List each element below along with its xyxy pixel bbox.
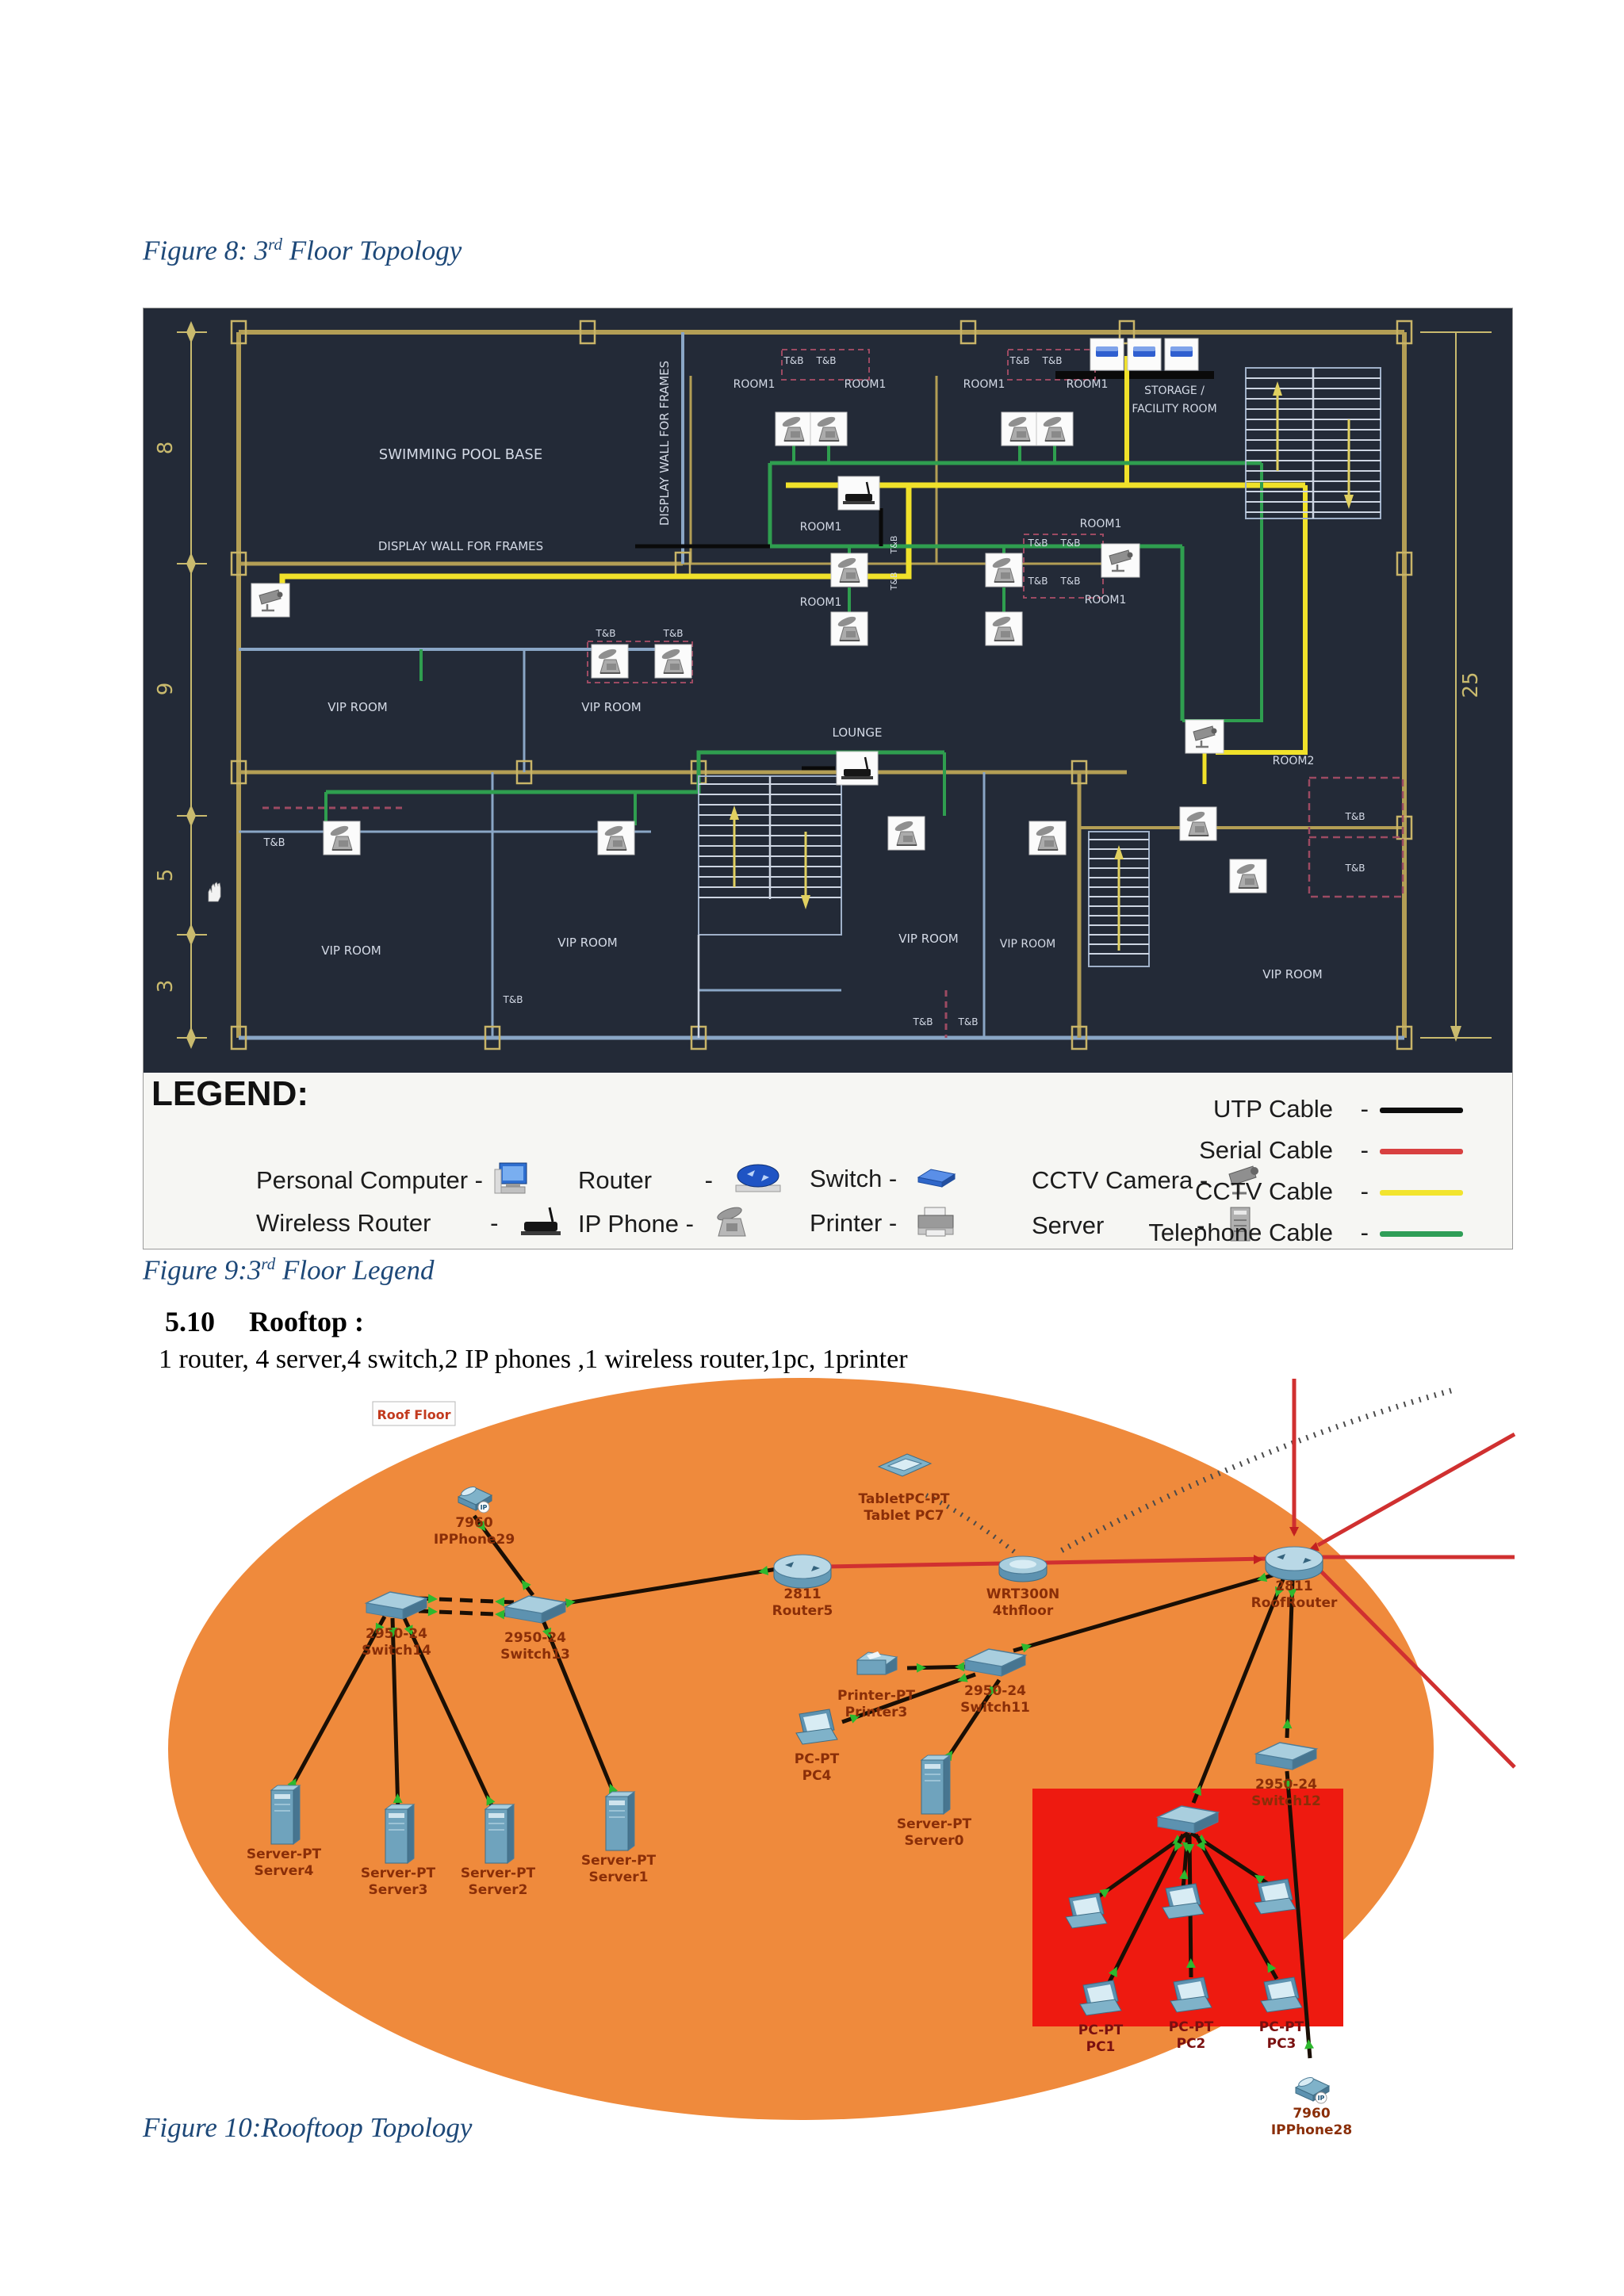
floorplan-label: 5: [154, 869, 178, 882]
ip-phone-plan-icon: [592, 645, 628, 678]
serial-cable-swatch: [1380, 1149, 1463, 1154]
floorplan-label: ROOM1: [1080, 518, 1122, 530]
figure10-caption-text: Figure 10:Rooftoop Topology: [143, 2112, 472, 2143]
floorplan-label: VIP ROOM: [898, 932, 958, 946]
node-label-line2: Server3: [369, 1882, 428, 1898]
svg-text:IP: IP: [1318, 2095, 1325, 2102]
floorplan-canvas: SWIMMING POOL BASEDISPLAY WALL FOR FRAME…: [144, 308, 1512, 1073]
node-label-line2: Printer3: [845, 1705, 908, 1720]
node-label-line2: Server4: [255, 1863, 314, 1879]
floorplan-label: T&B: [1345, 863, 1365, 874]
node-label-line1: Server-PT: [897, 1816, 972, 1832]
node-label-line2: Tablet PC7: [864, 1508, 944, 1524]
floorplan-label: T&B: [663, 628, 684, 639]
rooftop-topology-canvas: Roof Floor IP7960IPPhone29 2950-24Switch…: [103, 1375, 1522, 2177]
floorplan-label: ROOM2: [1273, 755, 1315, 767]
floorplan-label: ROOM1: [963, 378, 1005, 391]
ip-phone-plan-icon: [1180, 807, 1216, 840]
floorplan-label: ROOM1: [845, 378, 887, 391]
node-label-line1: 2950-24: [504, 1630, 566, 1646]
legend-item-switch: Switch -: [810, 1161, 959, 1200]
floorplan-label: STORAGE /: [1144, 385, 1205, 397]
floorplan-label: 25: [1459, 672, 1483, 698]
section-number: 5.10: [165, 1306, 215, 1337]
node-label-line2: PC4: [802, 1768, 832, 1784]
legend-cable-cctv: CCTV Cable -: [1127, 1177, 1463, 1206]
legend-cable-serial: Serial Cable -: [1127, 1136, 1463, 1165]
legend-item-ip-phone: IP Phone -: [578, 1204, 753, 1247]
floorplan-label: T&B: [889, 572, 899, 591]
legend-cable-utp: UTP Cable -: [1127, 1095, 1463, 1123]
server-node-icon: [921, 1755, 950, 1814]
figure9-caption-sup: rd: [261, 1254, 275, 1273]
legend-label-ip-phone: IP Phone -: [578, 1210, 694, 1238]
ip-phone-plan-icon: [986, 553, 1022, 587]
cctv-plan-icon: [251, 584, 289, 617]
ip-phone-plan-icon: [888, 817, 925, 850]
floorplan-label: T&B: [1345, 811, 1365, 822]
node-label-line2: Server0: [905, 1833, 964, 1849]
floorplan-label: VIP ROOM: [557, 936, 617, 950]
node-label-line2: PC2: [1177, 2036, 1206, 2052]
floorplan-label: ROOM1: [800, 521, 842, 534]
floorplan-label: T&B: [1042, 355, 1063, 366]
ip-phone-node-icon: IP: [1296, 2076, 1329, 2103]
server-node-icon: [271, 1785, 300, 1844]
cctv-cable-swatch: [1380, 1190, 1463, 1196]
legend-label-telephone-cable: Telephone Cable: [1055, 1219, 1333, 1247]
ip-phone-plan-icon: [831, 553, 868, 587]
figure9-caption-suffix: Floor Legend: [275, 1255, 434, 1286]
legend-dash: -: [705, 1166, 713, 1194]
node-label-line1: Printer-PT: [837, 1688, 915, 1704]
node-label-line1: 2811: [783, 1586, 821, 1602]
section-heading: 5.10 Rooftop :: [165, 1305, 364, 1338]
figure8-caption-sup: rd: [268, 235, 282, 254]
ip-phone-plan-icon: [831, 612, 868, 645]
printer-icon: [913, 1204, 958, 1246]
node-label-line1: Server-PT: [461, 1865, 536, 1881]
node-label-line2: Server2: [469, 1882, 528, 1898]
legend-cable-telephone: Telephone Cable -: [1055, 1219, 1463, 1247]
node-label-line1: PC-PT: [1078, 2022, 1124, 2038]
ip-phone-plan-icon: [655, 645, 691, 678]
floorplan-label: T&B: [1028, 576, 1048, 587]
node-label-line2: PC1: [1086, 2039, 1116, 2055]
node-label-line2: Switch11: [960, 1700, 1030, 1716]
roof-floor-label: Roof Floor: [377, 1407, 450, 1422]
floorplan-label: 8: [154, 442, 178, 455]
floorplan-label: T&B: [1009, 355, 1030, 366]
floorplan-label: T&B: [596, 628, 616, 639]
node-label-line2: 4thfloor: [993, 1603, 1054, 1619]
floorplan-label: T&B: [958, 1016, 979, 1027]
node-label-line2: Router5: [772, 1603, 833, 1619]
floorplan-label: ROOM1: [733, 378, 776, 391]
router-node-icon: [1266, 1547, 1323, 1580]
cctv-plan-icon: [1101, 544, 1139, 577]
ip-phone-plan-icon: [1002, 412, 1038, 446]
node-label-line1: 2950-24: [964, 1683, 1026, 1699]
telephone-cable-swatch: [1380, 1231, 1463, 1237]
legend-dash: -: [490, 1209, 498, 1237]
node-label-line1: PC-PT: [795, 1751, 840, 1767]
node-label-line1: 2950-24: [366, 1626, 427, 1642]
node-label-line2: Switch12: [1251, 1793, 1321, 1809]
ip-phone-plan-icon: [1036, 412, 1073, 446]
ip-phone-plan-icon: [598, 821, 634, 855]
node-label-line1: WRT300N: [986, 1586, 1059, 1602]
section-title: Rooftop :: [249, 1306, 364, 1337]
floorplan-label: T&B: [889, 536, 899, 555]
ip-phone-plan-icon: [986, 612, 1022, 645]
switch-plan-icon: [1165, 339, 1198, 370]
legend-title: LEGEND:: [151, 1074, 308, 1114]
floorplan-label: LOUNGE: [833, 725, 883, 740]
floorplan-label: VIP ROOM: [321, 943, 381, 958]
figure9-caption-prefix: Figure 9:3: [143, 1255, 261, 1286]
server-node-icon: [485, 1804, 514, 1863]
node-label-line1: PC-PT: [1169, 2019, 1214, 2035]
floorplan-label: ROOM1: [1067, 378, 1109, 391]
switch-plan-icon: [1090, 339, 1124, 370]
floorplan-label: T&B: [816, 355, 837, 366]
ip-phone-plan-icon: [1029, 821, 1066, 855]
switch-plan-icon: [1128, 339, 1161, 370]
floorplan-legend: LEGEND: Personal Computer - Router - Swi…: [144, 1073, 1512, 1249]
node-label-line1: Server-PT: [581, 1853, 657, 1869]
legend-label-wireless-router: Wireless Router: [256, 1209, 431, 1237]
node-label-line2: RoofRouter: [1251, 1595, 1338, 1611]
section-body-text: 1 router, 4 server,4 switch,2 IP phones …: [159, 1345, 908, 1375]
floorplan-label: ROOM1: [1085, 594, 1127, 607]
wrt-node-icon: [999, 1556, 1047, 1582]
switch-icon: [913, 1161, 959, 1200]
router-icon: [733, 1161, 783, 1203]
svg-text:IP: IP: [481, 1504, 488, 1511]
cctv-plan-icon: [1185, 720, 1224, 753]
node-label-line2: Switch14: [362, 1643, 431, 1659]
legend-label-switch: Switch -: [810, 1165, 897, 1192]
floorplan-label: VIP ROOM: [1000, 938, 1055, 951]
legend-label-personal-computer: Personal Computer -: [256, 1166, 483, 1194]
legend-label-utp-cable: UTP Cable: [1127, 1095, 1333, 1123]
node-label-line2: PC3: [1267, 2036, 1297, 2052]
server-node-icon: [385, 1804, 414, 1863]
floorplan-label: T&B: [1060, 576, 1081, 587]
floorplan-label: VIP ROOM: [327, 700, 387, 714]
ip-phone-icon: [710, 1204, 753, 1247]
legend-label-router: Router: [578, 1166, 652, 1194]
floorplan-label: DISPLAY WALL FOR FRAMES: [657, 361, 672, 526]
node-label-line2: IPPhone28: [1271, 2122, 1352, 2138]
legend-label-serial-cable: Serial Cable: [1127, 1136, 1333, 1165]
legend-label-cctv-cable: CCTV Cable: [1127, 1177, 1333, 1206]
legend-label-printer: Printer -: [810, 1209, 897, 1237]
floorplan-label: VIP ROOM: [581, 700, 641, 714]
figure8-caption-prefix: Figure 8: 3: [143, 235, 268, 266]
floorplan-label: T&B: [783, 355, 804, 366]
figure10-caption: Figure 10:Rooftoop Topology: [143, 2112, 472, 2144]
floorplan-label: 3: [154, 980, 178, 993]
floorplan-label: FACILITY ROOM: [1132, 403, 1216, 415]
node-label-line1: 2811: [1275, 1578, 1312, 1594]
wireless-router-icon: [518, 1204, 564, 1246]
legend-item-router: Router -: [578, 1161, 783, 1203]
node-label-line2: Switch13: [500, 1647, 570, 1663]
floorplan-label: T&B: [913, 1016, 933, 1027]
floorplan-label: 9: [154, 683, 178, 696]
floorplan-label: T&B: [503, 994, 523, 1005]
legend-item-wireless-router: Wireless Router -: [256, 1204, 564, 1246]
ip-phone-plan-icon: [1230, 859, 1266, 893]
floorplan-label: T&B: [1028, 538, 1048, 549]
floorplan-label: T&B: [1060, 538, 1081, 549]
node-label-line1: Server-PT: [361, 1865, 436, 1881]
wireless-router-plan-icon: [838, 476, 879, 510]
node-label-line1: 7960: [1293, 2106, 1330, 2122]
server-node-icon: [606, 1792, 634, 1850]
ip-phone-plan-icon: [810, 412, 847, 446]
legend-item-personal-computer: Personal Computer -: [256, 1161, 531, 1203]
ip-phone-plan-icon: [324, 821, 360, 855]
node-label-line1: 7960: [455, 1515, 492, 1531]
wireless-router-plan-icon: [837, 752, 878, 785]
pc-icon: [490, 1161, 531, 1203]
document-page: Figure 8: 3rd Floor Topology: [0, 0, 1624, 2296]
floorplan-label: VIP ROOM: [1262, 967, 1322, 982]
node-label-line1: PC-PT: [1259, 2019, 1304, 2035]
figure9-caption: Figure 9:3rd Floor Legend: [143, 1254, 435, 1287]
node-label-line1: TabletPC-PT: [859, 1491, 950, 1507]
floorplan-label: ROOM1: [800, 596, 842, 609]
router-node-icon: [774, 1555, 831, 1588]
figure8-caption: Figure 8: 3rd Floor Topology: [143, 235, 462, 267]
node-label-line1: Server-PT: [247, 1846, 322, 1862]
legend-item-printer: Printer -: [810, 1204, 958, 1246]
floorplan-label: SWIMMING POOL BASE: [379, 446, 542, 463]
utp-cable-swatch: [1380, 1108, 1463, 1113]
node-label-line2: IPPhone29: [434, 1532, 515, 1548]
floorplan-label: T&B: [263, 837, 285, 849]
figure8-caption-suffix: Floor Topology: [282, 235, 462, 266]
floorplan-label: DISPLAY WALL FOR FRAMES: [378, 539, 543, 553]
figure8-floorplan-figure: SWIMMING POOL BASEDISPLAY WALL FOR FRAME…: [143, 308, 1513, 1249]
node-label-line2: Server1: [589, 1869, 649, 1885]
ip-phone-plan-icon: [776, 412, 812, 446]
node-label-line1: 2950-24: [1255, 1777, 1317, 1793]
